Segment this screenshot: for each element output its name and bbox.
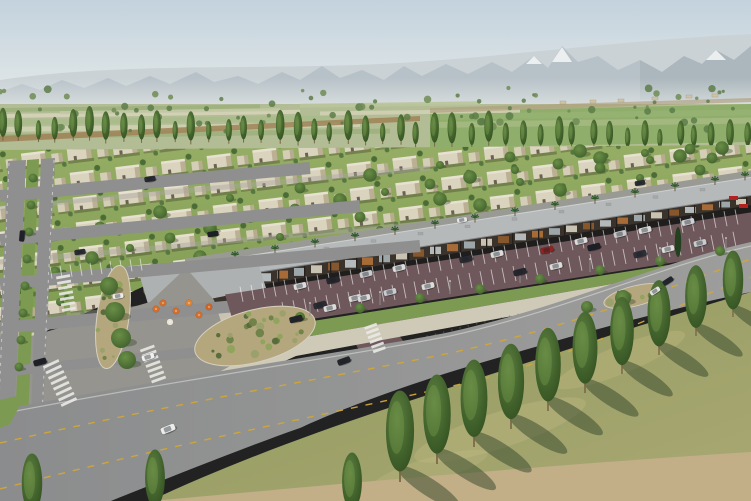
aerial-rendering (0, 0, 751, 501)
scene-canvas (0, 0, 751, 501)
